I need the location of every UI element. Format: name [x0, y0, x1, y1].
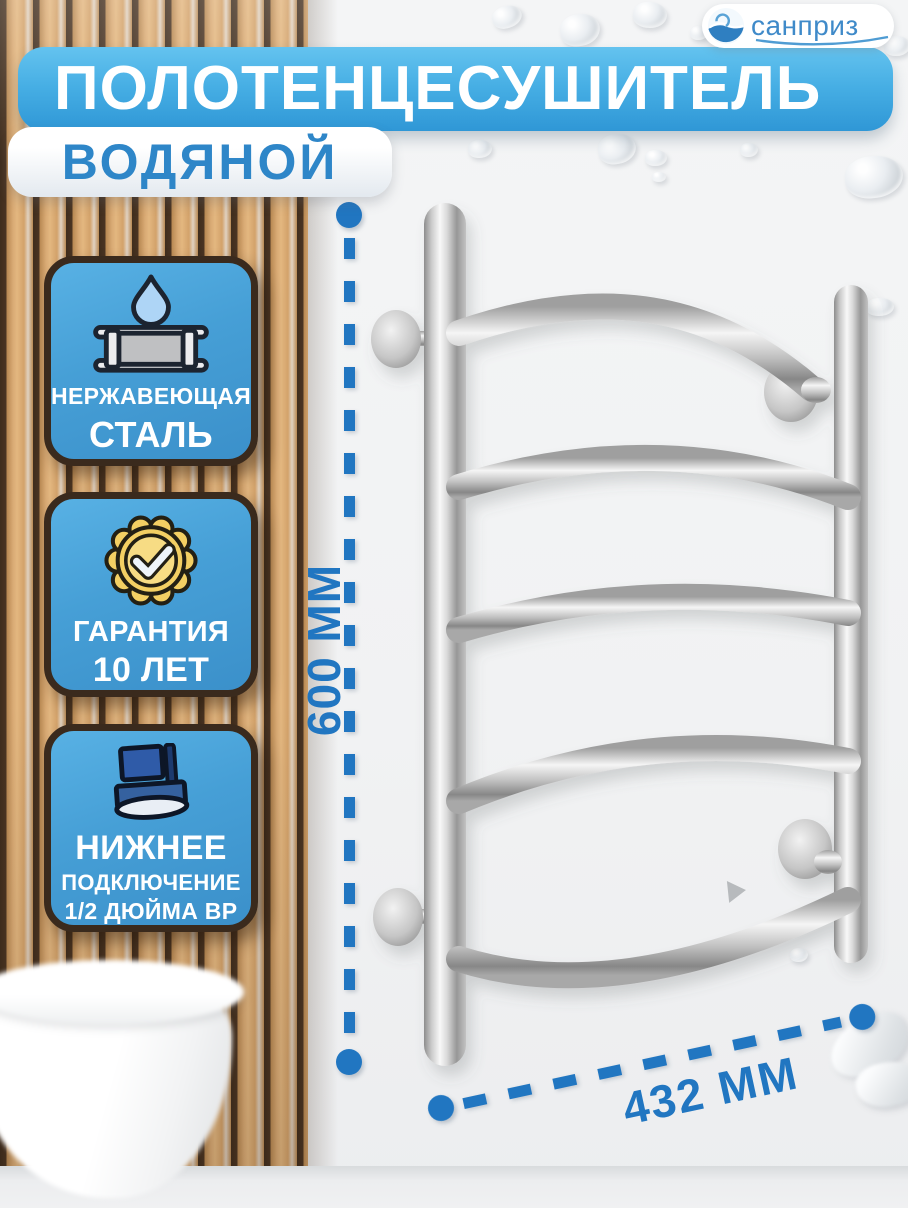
height-dimension-label: 600 ММ: [297, 530, 347, 770]
feature-text: НЕРЖАВЕЮЩАЯ: [51, 383, 251, 410]
dimension-dot-top: [336, 202, 362, 228]
feature-badge-warranty: ГАРАНТИЯ 10 ЛЕТ: [44, 492, 258, 697]
warranty-seal-icon: [98, 511, 204, 610]
feature-badge-stainless-steel: НЕРЖАВЕЮЩАЯ СТАЛЬ: [44, 256, 258, 466]
rung-end-cap: [814, 850, 842, 874]
feature-text: НИЖНЕЕ: [75, 829, 226, 868]
rung-end-cap: [801, 377, 831, 403]
page-title: ПОЛОТЕНЦЕСУШИТЕЛЬ: [18, 47, 893, 131]
bottom-connection-icon: [107, 743, 195, 821]
wall-bracket-top-left: [371, 310, 421, 368]
feature-badge-connection: НИЖНЕЕ ПОДКЛЮЧЕНИЕ 1/2 ДЮЙМА ВР: [44, 724, 258, 932]
feature-text: 1/2 ДЮЙМА ВР: [65, 898, 238, 925]
wall-bracket-bottom-left: [373, 888, 423, 946]
dimension-dot-right: [847, 1001, 878, 1032]
dimension-dot-bottom: [336, 1049, 362, 1075]
brand-logo: санприз: [702, 4, 894, 48]
wave-logo-icon: [707, 7, 745, 45]
feature-text: ГАРАНТИЯ: [73, 616, 229, 649]
feature-text: ПОДКЛЮЧЕНИЕ: [61, 870, 240, 896]
logo-underline-swoosh: [754, 35, 890, 49]
product-card: 600 ММ 432 ММ ПОЛОТЕНЦЕСУШИТЕЛЬ ВОДЯНОЙ …: [0, 0, 908, 1208]
feature-text: 10 ЛЕТ: [93, 651, 209, 690]
stainless-steel-pipe-icon: [87, 273, 215, 375]
dimension-dot-left: [426, 1093, 457, 1124]
page-subtitle: ВОДЯНОЙ: [8, 127, 392, 197]
feature-text: СТАЛЬ: [89, 414, 213, 456]
